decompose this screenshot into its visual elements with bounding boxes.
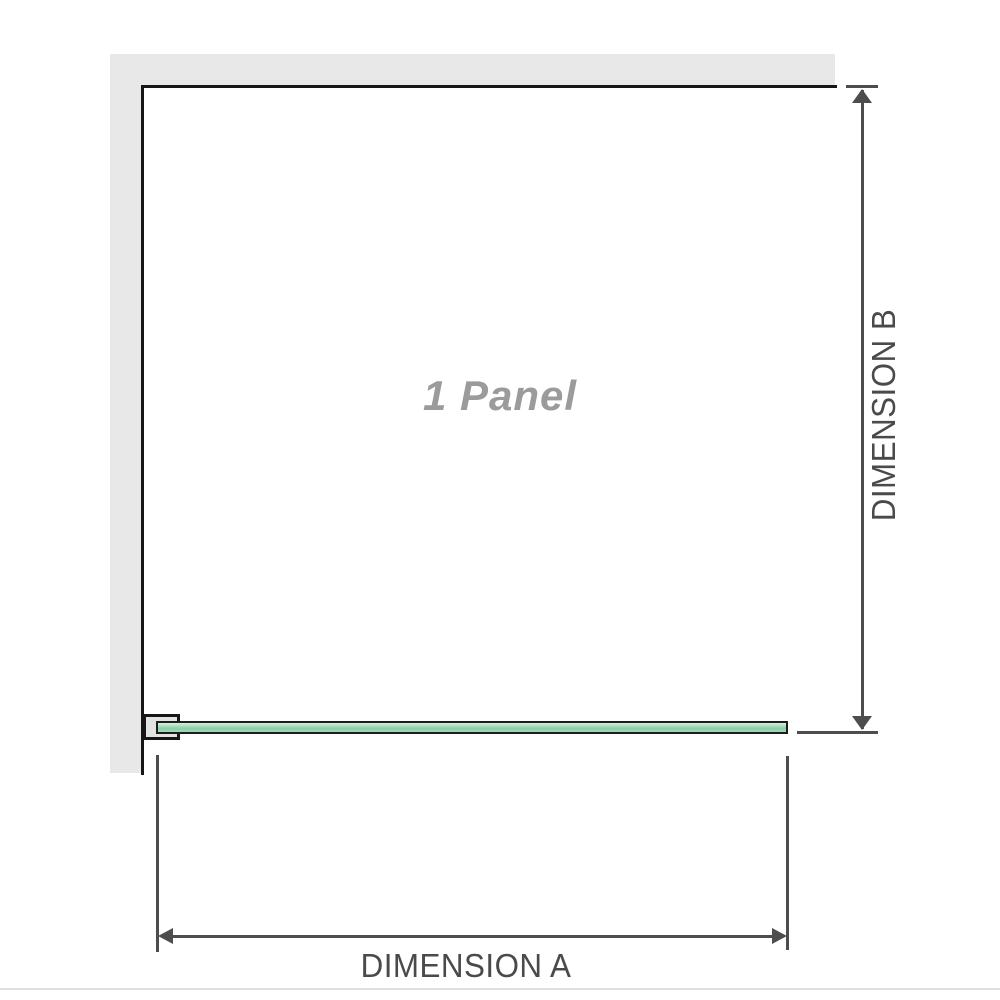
- dimension-a-left-extension-line: [156, 755, 159, 952]
- dimension-a-right-extension-line: [786, 756, 789, 950]
- dimension-a-line: [166, 935, 779, 938]
- dimension-b-line: [861, 90, 864, 729]
- glass-panel: [156, 721, 788, 734]
- wall-top-bar: [110, 54, 835, 87]
- dimension-b-top-tick: [846, 85, 878, 88]
- dimension-a-label: DIMENSION A: [361, 947, 572, 985]
- dimension-b-bottom-tick: [797, 731, 878, 734]
- wall-left-bar: [110, 54, 143, 773]
- dimension-b-label: DIMENSION B: [865, 309, 903, 522]
- arrow-right-icon: [772, 928, 787, 944]
- shower-panel-diagram: 1 Panel DIMENSION B DIMENSION A: [0, 0, 1000, 1000]
- arrow-down-icon: [852, 716, 872, 730]
- panel-count-label: 1 Panel: [423, 372, 577, 420]
- bottom-separator-line: [0, 988, 1000, 990]
- panel-area: 1 Panel: [143, 88, 837, 704]
